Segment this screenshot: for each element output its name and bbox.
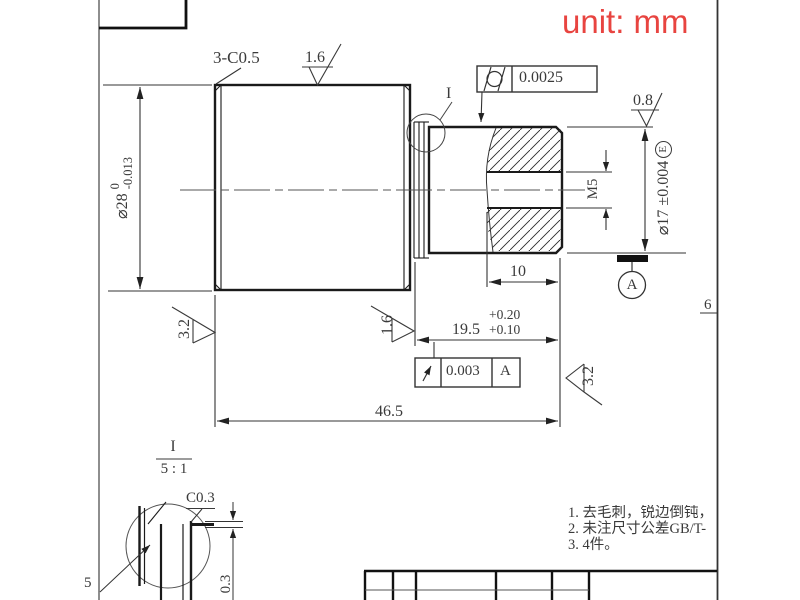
note-line-1: 1. 去毛刺，锐边倒钝， xyxy=(568,505,717,521)
detail-view-scale: 5 : 1 xyxy=(150,461,198,478)
roughness-mid-value: 1.6 xyxy=(380,307,396,343)
roughness-small-end-value: 0.8 xyxy=(633,92,653,110)
item-number: 5 xyxy=(84,575,92,592)
dim-10: 10 xyxy=(503,263,533,281)
note-line-2: 2. 未注尺寸公差GB/T- xyxy=(568,521,717,537)
roughness-symbols xyxy=(172,44,662,405)
roughness-right-value: 3.2 xyxy=(581,358,597,394)
dim-46-5: 46.5 xyxy=(375,403,403,421)
envelope-symbol: E xyxy=(655,141,672,158)
dim-dia28-text: ⌀28 xyxy=(112,193,132,219)
dim-dia17-text: ⌀17 ±0.004 xyxy=(653,161,673,235)
zone-mark: 6 xyxy=(704,297,712,314)
detail-step-dim: 0.3 xyxy=(218,566,234,600)
cylindricity-value: 0.0025 xyxy=(519,69,563,87)
dim-19-5: 19.5 xyxy=(452,321,480,339)
dim-dia28-upper: 0 xyxy=(109,157,122,189)
title-block xyxy=(364,571,717,600)
dim-dia28-lower: -0.013 xyxy=(122,157,135,189)
runout-value: 0.003 xyxy=(446,363,480,380)
dim-19-5-upper: +0.20 xyxy=(489,307,520,323)
main-view-outline xyxy=(215,85,562,290)
roughness-top-value: 1.6 xyxy=(305,49,325,67)
detail-ref-label: I xyxy=(446,85,451,103)
cylindricity-symbol xyxy=(484,67,505,91)
dim-dia28: ⌀28 0 -0.013 xyxy=(109,113,135,263)
detail-view-label: I xyxy=(160,438,186,456)
dim-dia17: ⌀17 ±0.004 E xyxy=(651,108,675,268)
dim-thread: M5 xyxy=(585,169,601,209)
runout-datum-ref: A xyxy=(500,363,511,380)
circular-runout-symbol xyxy=(423,366,431,381)
datum-label: A xyxy=(622,277,642,294)
roughness-left-value: 3.2 xyxy=(177,311,193,347)
detail-chamfer-note: C0.3 xyxy=(186,490,215,509)
technical-notes: 1. 去毛刺，锐边倒钝， 2. 未注尺寸公差GB/T- 3. 4件。 xyxy=(568,505,717,554)
note-line-3: 3. 4件。 xyxy=(568,537,717,553)
drawing-sheet: unit: mm 3-C0.5 1.6 0.8 3.2 1.6 3.2 0.00… xyxy=(0,0,800,600)
dim-19-5-lower: +0.10 xyxy=(489,322,520,338)
unit-label: unit: mm xyxy=(562,3,689,41)
chamfer-note: 3-C0.5 xyxy=(213,48,260,68)
